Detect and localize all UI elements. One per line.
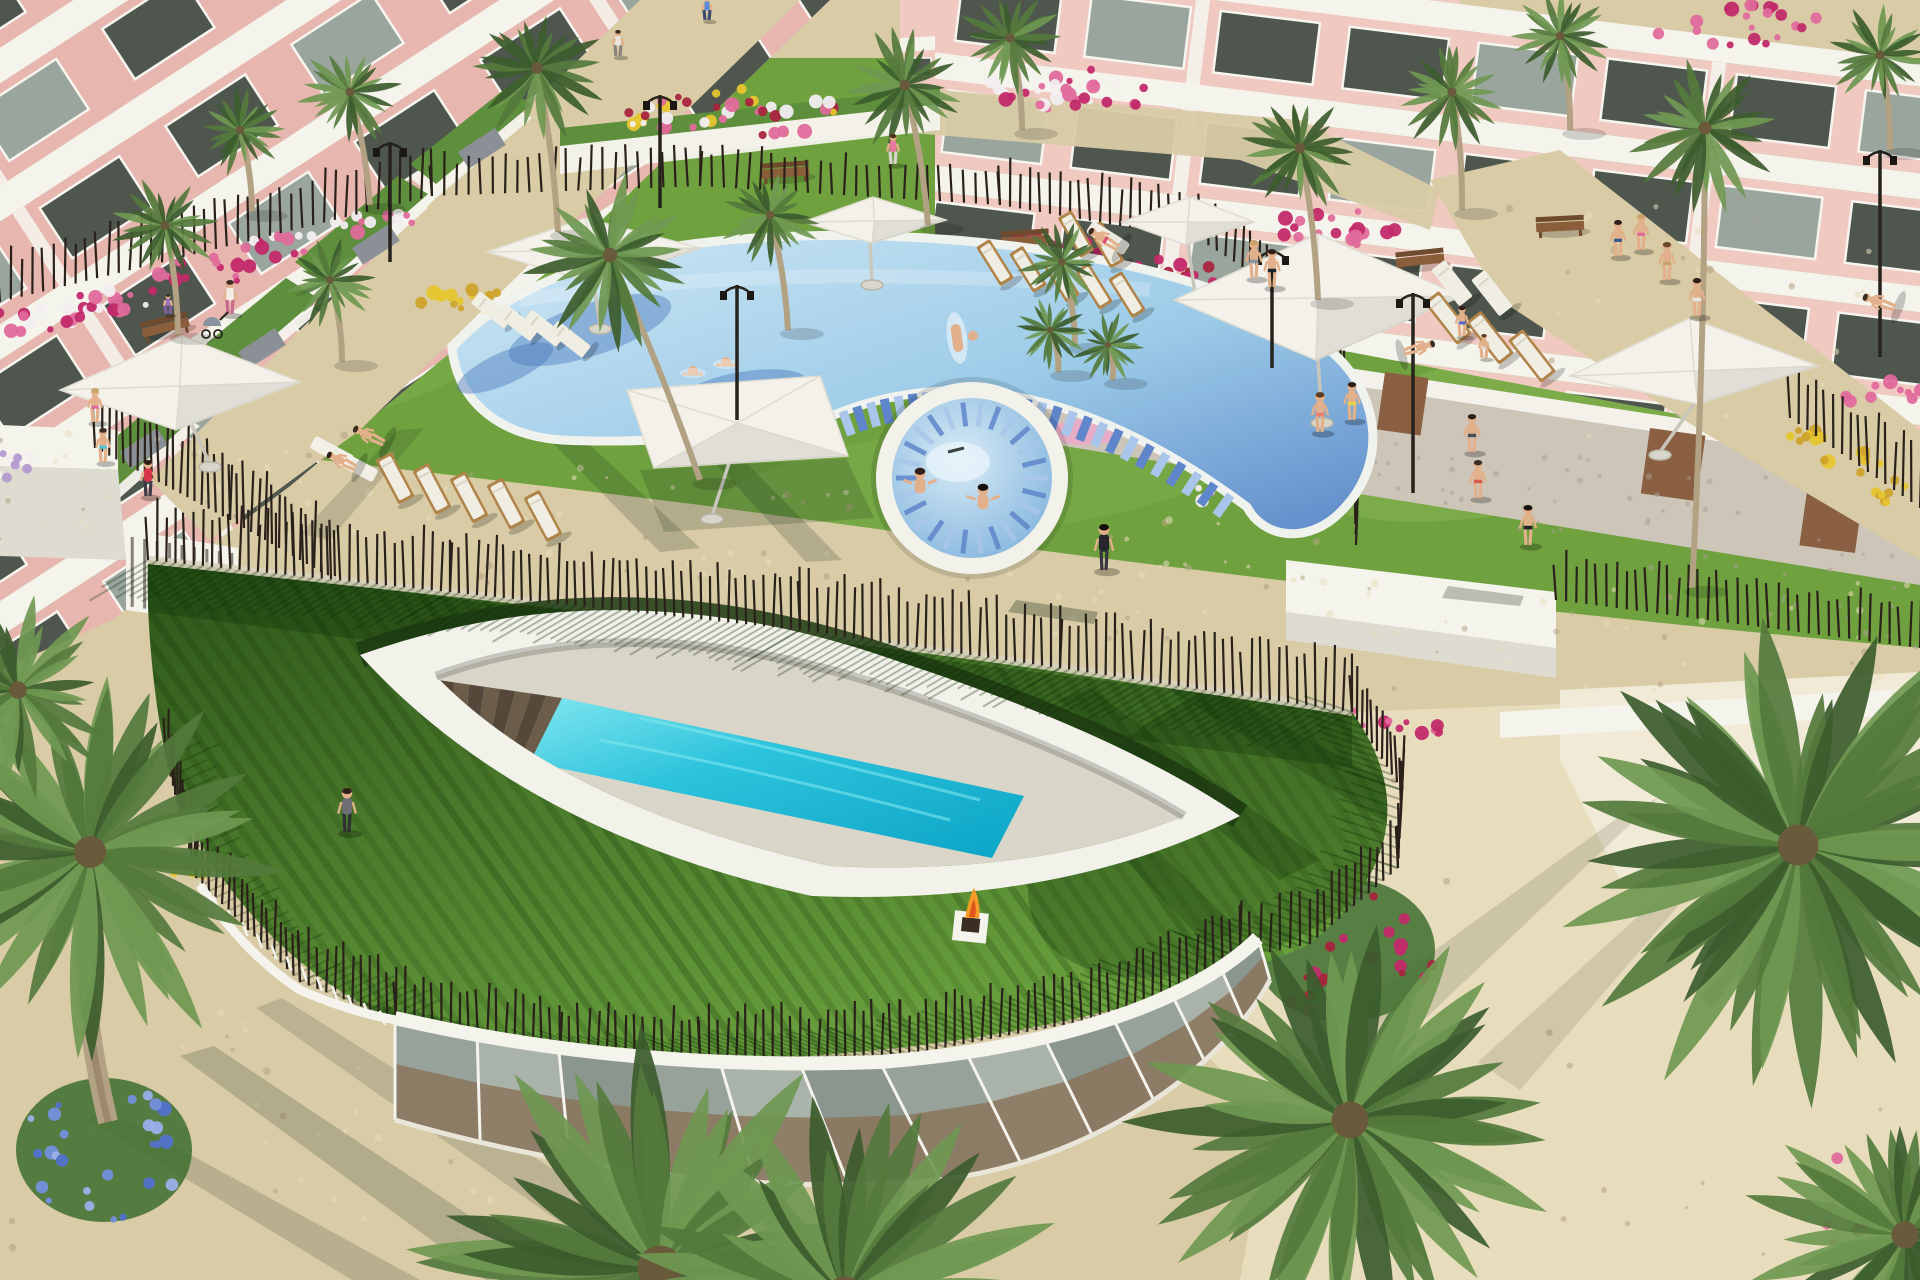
aerial-render-resort-scene	[0, 0, 1920, 1280]
scene-canvas	[0, 0, 1920, 1280]
circular-spa	[871, 377, 1073, 579]
